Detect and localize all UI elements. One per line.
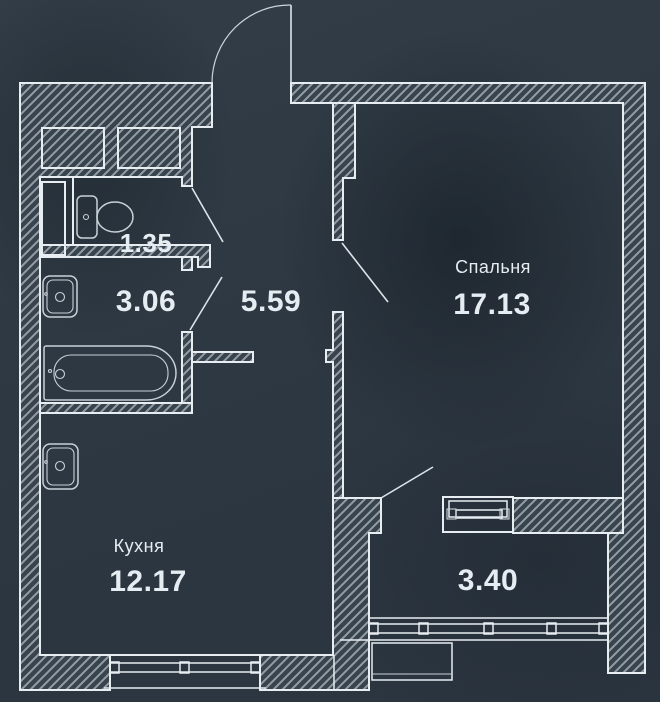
doors: [190, 5, 433, 498]
kitchen-name-label: Кухня: [114, 536, 165, 556]
entrance-door: [212, 5, 291, 83]
bathroom-door-leaf: [190, 277, 222, 330]
wall-hall-stub: [192, 352, 253, 362]
kitchen-sink-icon: [43, 444, 78, 489]
kitchen-window: [104, 655, 266, 688]
wall-bottom-mid-strip: [260, 498, 381, 690]
wall-bath-right-lower: [182, 332, 192, 403]
floor-plan-drawing: 1.35 3.06 5.59 Спальня 17.13 Кухня 12.17…: [0, 0, 660, 702]
wc-door-leaf: [192, 188, 223, 242]
bedroom-name-label: Спальня: [455, 257, 531, 277]
bedroom-area-label: 17.13: [453, 288, 531, 321]
bedroom-door-leaf: [342, 243, 388, 302]
balcony-door-unit: [443, 497, 513, 532]
entrance-door-arc: [212, 5, 291, 83]
balcony-glazing: [340, 618, 608, 680]
wall-hall-bedroom-lower: [326, 312, 343, 498]
wall-balcony-band-right: [513, 498, 623, 533]
hallway-area-label: 5.59: [241, 285, 301, 318]
balcony-glazing-frame: [369, 624, 608, 633]
bathroom-area-label: 3.06: [116, 285, 176, 318]
wall-bath-bottom: [40, 403, 192, 413]
wc-area-label: 1.35: [120, 228, 173, 258]
bathtub-icon: [44, 346, 176, 400]
kitchen-window-frame: [110, 663, 260, 672]
balcony-door-inner: [449, 501, 507, 517]
balcony-door-leaf: [381, 467, 433, 498]
kitchen-area-label: 12.17: [109, 565, 187, 598]
balcony-area-label: 3.40: [458, 564, 518, 597]
sink-icon: [43, 276, 77, 317]
wall-hall-bedroom-upper: [333, 103, 355, 240]
floor-plan: 1.35 3.06 5.59 Спальня 17.13 Кухня 12.17…: [0, 0, 660, 702]
wall-bath-right-upper: [182, 257, 192, 270]
